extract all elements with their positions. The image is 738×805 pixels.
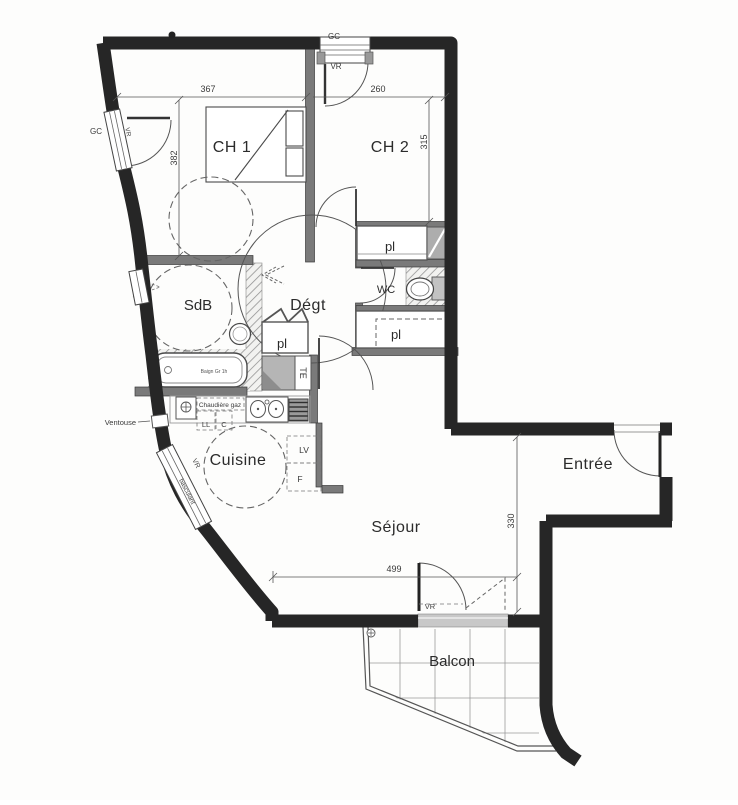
ann-vr-balcony: VR [425,602,436,611]
room-label-cuisine: Cuisine [210,452,267,469]
wall-point-marker [169,32,176,39]
ch1-window-swing [125,120,171,166]
room-label-ch2: CH 2 [371,139,409,156]
floor-plan-page: CH 1 CH 2 SdB Dégt WC pl pl pl Cuisine S… [0,0,738,800]
ann-te: TE [298,367,308,379]
dim-text-260: 260 [370,84,385,94]
toilet-tank [432,277,446,300]
room-label-sdb: SdB [184,297,212,314]
wall-ch1-sdb [137,256,253,265]
room-label-pl-hall: pl [277,336,287,351]
ann-chaudiere: Chaudière gaz [199,402,241,409]
room-label-degt: Dégt [290,297,326,314]
ch2-door-swing [316,187,356,227]
ann-gc-left: GC [90,127,102,136]
room-label-ch1: CH 1 [213,139,251,156]
sink-drain-left [257,408,259,410]
ann-ventouse: Ventouse [105,418,136,427]
window-ch2 [317,37,373,64]
entrance-threshold [614,425,660,432]
balcony [363,614,556,752]
dim-text-382: 382 [169,150,179,165]
balcony-door-sill [418,614,508,627]
floor-plan-canvas: CH 1 CH 2 SdB Dégt WC pl pl pl Cuisine S… [0,0,738,800]
cooktop [289,399,308,421]
entrance-door-swing [614,430,660,476]
ann-lv: LV [299,445,309,455]
wall-kitchen-stub [322,486,343,494]
wc-fixtures [407,277,447,300]
dim-text-315: 315 [419,134,429,149]
sdb-door-chevron-2 [262,267,276,283]
room-label-balcon: Balcon [429,653,475,670]
ventouse-box [151,414,168,428]
ann-c: C [221,420,227,429]
room-label-sejour: Séjour [371,519,420,536]
room-label-entree: Entrée [563,456,613,473]
ann-vr-kitchen: VR [190,458,201,470]
ventouse-leader [138,421,150,422]
bathtub-outer [152,353,247,387]
balcony-railing-outer [363,627,556,751]
room-label-pl-bottom: pl [391,327,401,342]
dim-text-367: 367 [200,84,215,94]
dim-text-499: 499 [386,564,401,574]
room-label-wc: WC [377,284,395,296]
sink-unit [246,397,288,422]
ann-vr-top: VR [330,62,341,71]
wall-ch1-ch2 [306,49,315,262]
ann-gc-top: GC [328,32,340,41]
wall-right-lower-curved [546,521,578,761]
dim-text-330: 330 [506,513,516,528]
window-ch2-cap-right [365,52,373,64]
balcony-fixed-pane [466,578,505,612]
window-ch2-cap-left [317,52,325,64]
sdb-door-chevron-1 [266,266,284,284]
turning-circle-ch1 [169,177,253,261]
wall-closet2-sejour [352,348,458,356]
ann-f: F [297,474,302,484]
ann-ll: LL [202,420,210,429]
ann-bathtub: Baign Gr 1h [201,369,228,375]
balcony-tile-grid [366,627,540,752]
ventouse-outlet [151,414,168,428]
room-label-pl-top: pl [385,239,395,254]
sink-drain-right [275,408,277,410]
